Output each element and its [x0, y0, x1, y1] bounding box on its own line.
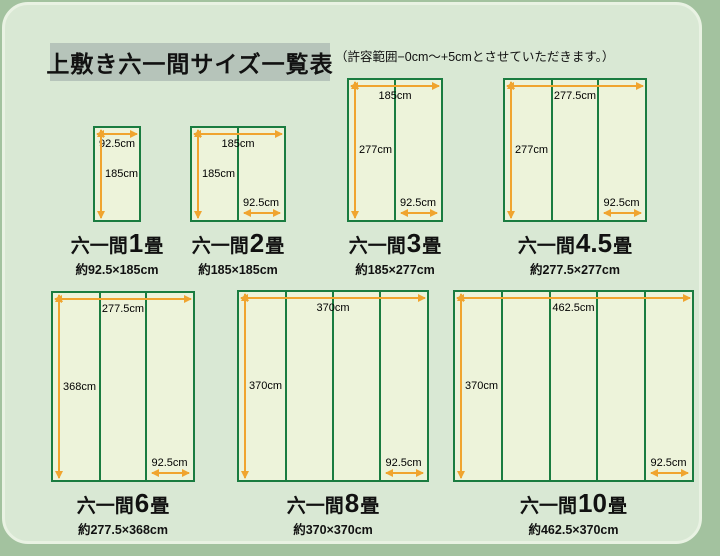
width-dimension-label: 462.5cm — [455, 302, 692, 314]
mat-rect: 462.5cm 370cm 92.5cm — [453, 290, 694, 482]
diagram-name: 六一間4.5畳 — [503, 230, 647, 256]
diagram-name: 六一間6畳 — [51, 490, 195, 516]
arrowhead-left-icon — [151, 469, 159, 477]
tatami-diagram-10jo: 462.5cm 370cm 92.5cm 六一間10畳 約462.5×370cm — [453, 290, 694, 538]
tatami-diagram-2jo: 185cm 185cm 92.5cm 六一間2畳 約185×185cm — [190, 126, 286, 278]
diagram-name-number: 8 — [344, 490, 360, 516]
mat-divider — [332, 292, 334, 480]
diagram-name-prefix: 六一間 — [192, 237, 249, 256]
height-arrow — [460, 294, 462, 478]
height-dimension-label: 185cm — [105, 168, 138, 180]
diagram-name: 六一間10畳 — [453, 490, 694, 516]
mat-divider — [145, 293, 147, 480]
arrowhead-left-icon — [400, 209, 408, 217]
arrowhead-down-icon — [194, 211, 202, 219]
height-dimension-label: 277cm — [515, 144, 548, 156]
arrowhead-down-icon — [241, 471, 249, 479]
single-mat-width-label: 92.5cm — [380, 457, 427, 469]
mat-divider — [644, 292, 646, 480]
mat-rect: 92.5cm 185cm — [93, 126, 141, 222]
arrowhead-right-icon — [681, 469, 689, 477]
size-chart-panel: 上敷き六一間サイズ一覧表 （許容範囲−0cm〜+5cmとさせていただきます。） … — [2, 2, 702, 544]
arrowhead-right-icon — [430, 209, 438, 217]
diagram-name: 六一間3畳 — [347, 230, 443, 256]
diagram-name-prefix: 六一間 — [71, 237, 128, 256]
diagram-size-label: 約462.5×370cm — [453, 519, 694, 538]
width-dimension-label: 370cm — [239, 302, 427, 314]
single-mat-width-arrow — [604, 212, 641, 214]
arrowhead-up-icon — [241, 293, 249, 301]
diagram-name-number: 2 — [249, 230, 265, 256]
arrowhead-right-icon — [432, 82, 440, 90]
arrowhead-up-icon — [97, 129, 105, 137]
single-mat-width-arrow — [244, 212, 280, 214]
height-arrow — [197, 130, 199, 218]
arrowhead-left-icon — [650, 469, 658, 477]
arrowhead-down-icon — [457, 471, 465, 479]
width-arrow — [55, 298, 191, 300]
single-mat-width-arrow — [152, 472, 189, 474]
arrowhead-down-icon — [97, 211, 105, 219]
diagram-name-suffix: 畳 — [422, 237, 441, 256]
height-arrow — [58, 295, 60, 478]
arrowhead-left-icon — [243, 209, 251, 217]
diagram-name-prefix: 六一間 — [349, 237, 406, 256]
diagram-name-number: 4.5 — [575, 230, 613, 256]
single-mat-width-label: 92.5cm — [238, 197, 284, 209]
arrowhead-up-icon — [194, 129, 202, 137]
arrowhead-up-icon — [351, 81, 359, 89]
height-dimension-label: 368cm — [63, 381, 96, 393]
diagram-name-prefix: 六一間 — [287, 497, 344, 516]
arrowhead-right-icon — [130, 130, 138, 138]
arrowhead-right-icon — [184, 295, 192, 303]
arrowhead-right-icon — [275, 130, 283, 138]
single-mat-width-arrow — [651, 472, 688, 474]
diagram-size-label: 約277.5×368cm — [51, 519, 195, 538]
mat-divider — [99, 293, 101, 480]
arrowhead-up-icon — [507, 81, 515, 89]
tatami-diagram-4-5jo: 277.5cm 277cm 92.5cm 六一間4.5畳 約277.5×277c… — [503, 78, 647, 278]
width-dimension-label: 277.5cm — [53, 303, 193, 315]
height-arrow — [510, 82, 512, 218]
diagram-name: 六一間8畳 — [237, 490, 429, 516]
mat-divider — [285, 292, 287, 480]
width-arrow — [507, 85, 643, 87]
height-dimension-label: 277cm — [359, 144, 392, 156]
mat-rect: 185cm 185cm 92.5cm — [190, 126, 286, 222]
single-mat-width-label: 92.5cm — [645, 457, 692, 469]
arrowhead-down-icon — [351, 211, 359, 219]
diagram-name-suffix: 畳 — [360, 497, 379, 516]
diagram-area: 92.5cm 185cm 六一間1畳 約92.5×185cm 185cm 185… — [5, 5, 699, 541]
mat-divider — [501, 292, 503, 480]
height-dimension-label: 370cm — [465, 380, 498, 392]
tatami-diagram-8jo: 370cm 370cm 92.5cm 六一間8畳 約370×370cm — [237, 290, 429, 538]
diagram-name: 六一間1畳 — [93, 230, 141, 256]
tatami-diagram-6jo: 277.5cm 368cm 92.5cm 六一間6畳 約277.5×368cm — [51, 291, 195, 538]
width-arrow — [351, 85, 439, 87]
diagram-name-number: 3 — [406, 230, 422, 256]
diagram-name-number: 10 — [577, 490, 608, 516]
diagram-name-number: 1 — [128, 230, 144, 256]
arrowhead-right-icon — [683, 294, 691, 302]
diagram-name-number: 6 — [134, 490, 150, 516]
width-arrow — [241, 297, 425, 299]
mat-rect: 277.5cm 277cm 92.5cm — [503, 78, 647, 222]
arrowhead-left-icon — [603, 209, 611, 217]
arrowhead-right-icon — [634, 209, 642, 217]
page-background: 上敷き六一間サイズ一覧表 （許容範囲−0cm〜+5cmとさせていただきます。） … — [0, 0, 720, 556]
arrowhead-right-icon — [418, 294, 426, 302]
mat-rect: 185cm 277cm 92.5cm — [347, 78, 443, 222]
diagram-name-prefix: 六一間 — [520, 497, 577, 516]
height-dimension-label: 185cm — [202, 168, 235, 180]
tatami-diagram-3jo: 185cm 277cm 92.5cm 六一間3畳 約185×277cm — [347, 78, 443, 278]
diagram-size-label: 約92.5×185cm — [93, 259, 141, 278]
width-dimension-label: 185cm — [349, 90, 441, 102]
arrowhead-down-icon — [507, 211, 515, 219]
height-arrow — [100, 130, 102, 218]
height-arrow — [244, 294, 246, 478]
diagram-name: 六一間2畳 — [190, 230, 286, 256]
single-mat-width-arrow — [386, 472, 423, 474]
single-mat-width-label: 92.5cm — [395, 197, 441, 209]
diagram-name-suffix: 畳 — [608, 497, 627, 516]
mat-divider — [549, 292, 551, 480]
mat-divider — [596, 292, 598, 480]
arrowhead-right-icon — [636, 82, 644, 90]
mat-rect: 277.5cm 368cm 92.5cm — [51, 291, 195, 482]
diagram-size-label: 約370×370cm — [237, 519, 429, 538]
diagram-size-label: 約277.5×277cm — [503, 259, 647, 278]
width-dimension-label: 185cm — [192, 138, 284, 150]
diagram-name-prefix: 六一間 — [77, 497, 134, 516]
mat-rect: 370cm 370cm 92.5cm — [237, 290, 429, 482]
arrowhead-right-icon — [273, 209, 281, 217]
arrowhead-left-icon — [385, 469, 393, 477]
diagram-name-prefix: 六一間 — [518, 237, 575, 256]
arrowhead-up-icon — [55, 294, 63, 302]
width-arrow — [457, 297, 690, 299]
diagram-size-label: 約185×277cm — [347, 259, 443, 278]
diagram-name-suffix: 畳 — [150, 497, 169, 516]
mat-divider — [379, 292, 381, 480]
single-mat-width-arrow — [401, 212, 437, 214]
arrowhead-down-icon — [55, 471, 63, 479]
single-mat-width-label: 92.5cm — [146, 457, 193, 469]
diagram-name-suffix: 畳 — [613, 237, 632, 256]
diagram-size-label: 約185×185cm — [190, 259, 286, 278]
diagram-name-suffix: 畳 — [144, 237, 163, 256]
height-arrow — [354, 82, 356, 218]
tatami-diagram-1jo: 92.5cm 185cm 六一間1畳 約92.5×185cm — [93, 126, 141, 278]
arrowhead-right-icon — [416, 469, 424, 477]
height-dimension-label: 370cm — [249, 380, 282, 392]
width-dimension-label: 277.5cm — [505, 90, 645, 102]
single-mat-width-label: 92.5cm — [598, 197, 645, 209]
arrowhead-right-icon — [182, 469, 190, 477]
diagram-name-suffix: 畳 — [265, 237, 284, 256]
arrowhead-up-icon — [457, 293, 465, 301]
width-arrow — [194, 133, 282, 135]
